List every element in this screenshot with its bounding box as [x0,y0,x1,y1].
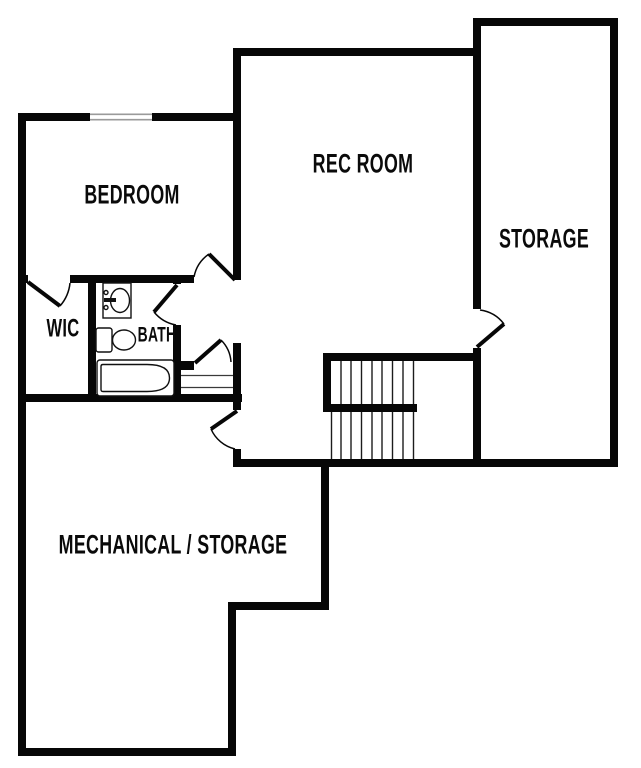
bathtub-icon [97,360,174,396]
wall-mech-right-upper [321,459,329,610]
sink-icon [103,283,131,318]
stairs-lower-flight [332,412,414,459]
stairs-upper-flight [341,361,414,404]
storage-door [477,310,504,347]
closet-door [195,340,231,363]
wall-wic-bath-divider [88,275,96,402]
wic-door [28,282,70,306]
wall-mech-bottom [18,748,236,756]
mechanical-storage-label: MECHANICAL / STORAGE [59,532,288,559]
toilet-icon [96,328,136,352]
bath-door [154,285,177,325]
wall-mech-right-lower [228,602,236,756]
bedroom-window [90,113,152,122]
floor-plan-drawing [0,0,641,768]
wall-mech-step [228,602,329,610]
wall-bedroom-bottom-stub [18,275,28,283]
wall-bath-right-stub [173,275,181,284]
closet-shelves [181,376,233,388]
wall-hall-right [233,343,241,410]
wall-rec-top [233,48,481,56]
wall-storage-right [610,18,618,467]
wall-rec-left-upper [233,48,241,121]
wall-storage-left-lower [473,348,481,467]
stair-rail [327,404,417,412]
storage-label: STORAGE [499,226,589,253]
wall-hall-right-stub [233,449,241,460]
wall-bottom-main [233,459,618,467]
wall-stair-left [323,353,331,412]
bedroom-label: BEDROOM [84,182,179,209]
bath-label: BATH [138,325,177,346]
wall-bedroom-right [233,121,241,280]
wic-label: WIC [46,317,79,342]
wall-storage-left-upper [473,18,481,309]
mechanical-door [211,411,237,449]
stairs [327,361,417,459]
wall-storage-top [473,18,618,26]
bedroom-door [194,254,235,280]
wall-outer-left [18,113,26,756]
wall-closet-door-stub [181,361,194,370]
rec-room-label: REC ROOM [313,151,414,178]
wall-stair-top [323,353,473,361]
floor-plan: BEDROOM REC ROOM STORAGE WIC BATH MECHAN… [0,0,641,768]
